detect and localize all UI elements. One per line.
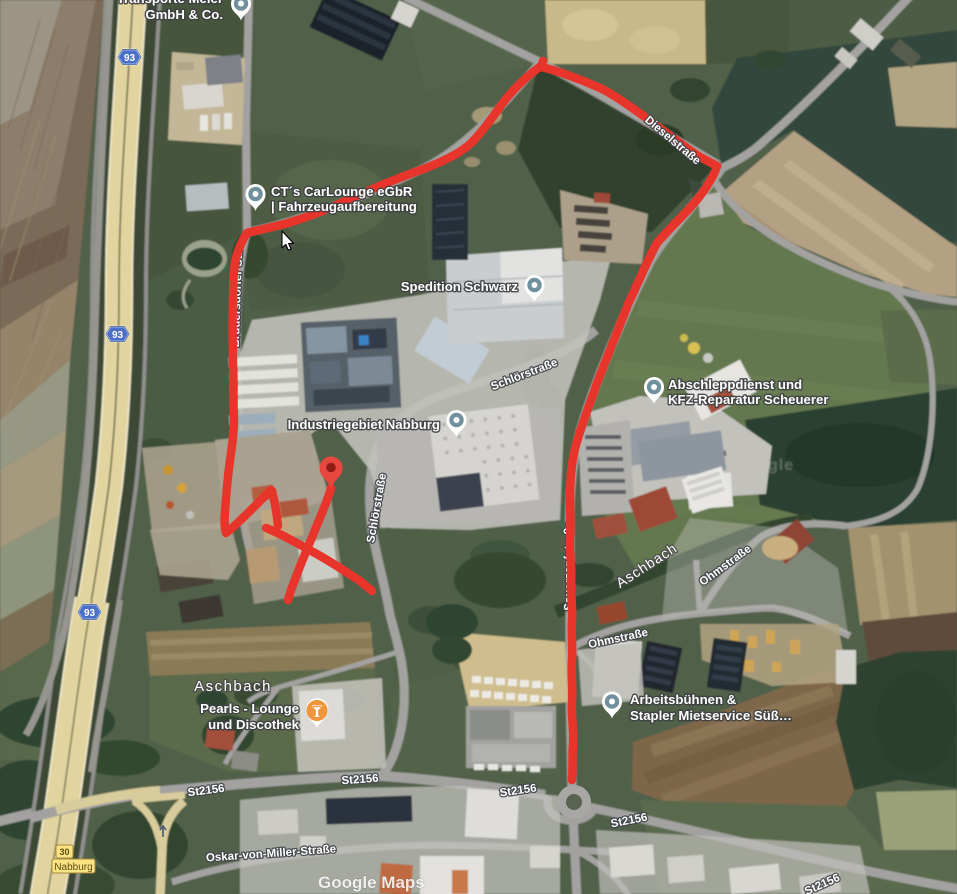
svg-text:GmbH & Co.: GmbH & Co.: [145, 7, 223, 22]
svg-text:KFZ-Reparatur Scheuerer: KFZ-Reparatur Scheuerer: [668, 392, 829, 407]
svg-text:Google Maps: Google Maps: [318, 873, 425, 892]
svg-text:93: 93: [124, 53, 136, 64]
svg-text:Abschleppdienst und: Abschleppdienst und: [668, 377, 802, 392]
svg-text:gle: gle: [768, 457, 794, 474]
svg-text:Arbeitsbühnen &: Arbeitsbühnen &: [630, 692, 737, 707]
svg-text:Industriegebiet Nabburg: Industriegebiet Nabburg: [288, 417, 440, 432]
svg-text:und Discothek: und Discothek: [208, 717, 300, 732]
svg-text:| Fahrzeugaufbereitung: | Fahrzeugaufbereitung: [271, 199, 417, 214]
svg-text:Nabburg: Nabburg: [54, 862, 92, 873]
svg-text:Transporte Meier: Transporte Meier: [117, 0, 223, 6]
svg-text:Aschbach: Aschbach: [194, 678, 272, 695]
svg-text:Spedition Schwarz: Spedition Schwarz: [401, 279, 519, 294]
svg-text:30: 30: [59, 847, 69, 857]
svg-text:Stapler Mietservice Süß…: Stapler Mietservice Süß…: [630, 708, 792, 723]
svg-text:CT´s CarLounge eGbR: CT´s CarLounge eGbR: [271, 184, 413, 199]
svg-text:Pearls - Lounge: Pearls - Lounge: [200, 701, 299, 716]
